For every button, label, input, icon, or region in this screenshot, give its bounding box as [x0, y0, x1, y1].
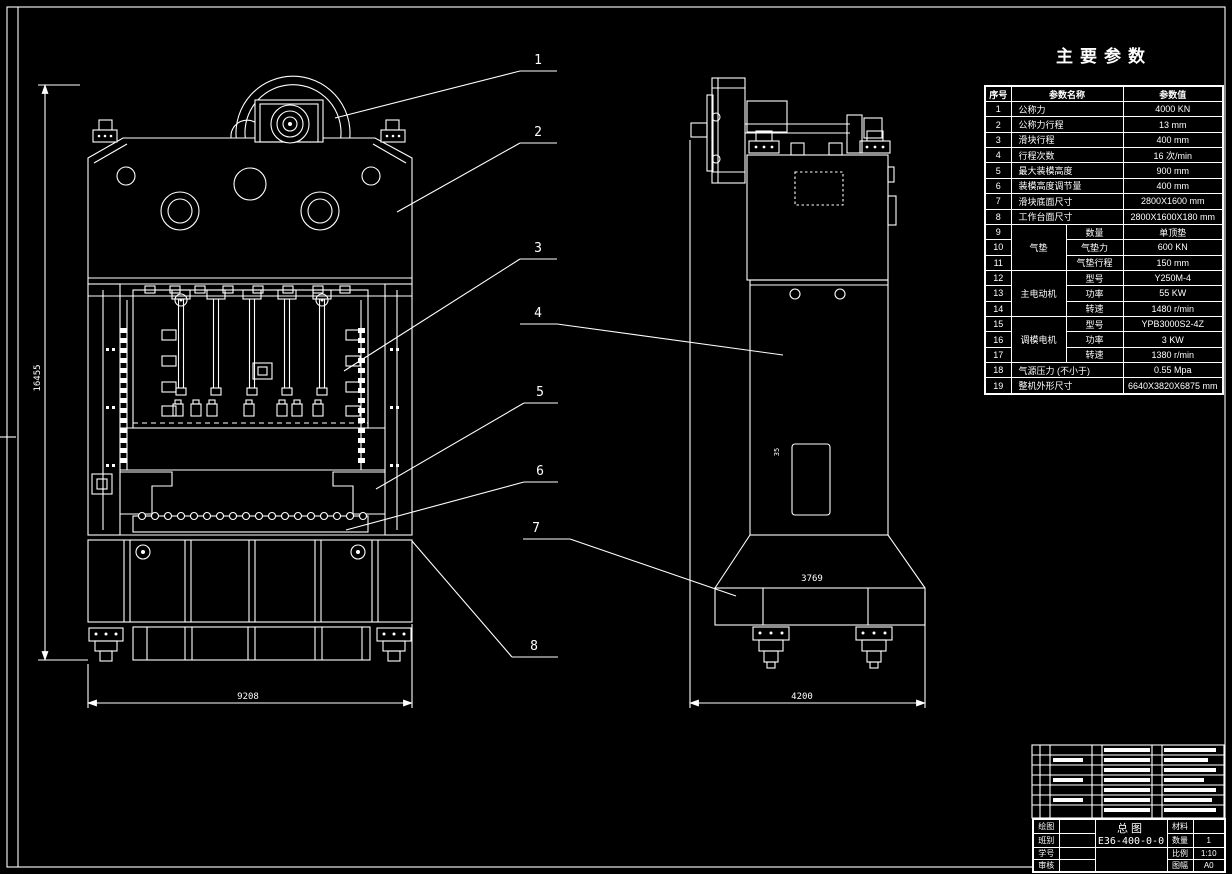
tb-label: 材料 — [1167, 819, 1193, 834]
drawing-name: 总图 — [1097, 820, 1166, 836]
dim-front-width: 9208 — [237, 692, 259, 702]
col-name: 参数名称 — [1011, 86, 1123, 102]
tb-label: 审核 — [1033, 860, 1059, 873]
front-view — [88, 76, 412, 661]
callout-label-8: 8 — [530, 639, 538, 654]
param-row: 15调模电机型号YPB3000S2-4Z — [985, 317, 1223, 332]
callouts: 1 2 3 4 5 6 7 8 — [335, 53, 783, 657]
drawing-number: E36-400-0-0 — [1097, 836, 1166, 847]
param-row: 12主电动机型号Y250M-4 — [985, 270, 1223, 285]
group-air-cushion: 气垫 — [1011, 224, 1066, 270]
side-anchor-feet — [753, 627, 892, 668]
dim-side-width: 4200 — [791, 692, 813, 702]
tb-label: 学号 — [1033, 848, 1059, 860]
param-row: 9气垫数量单顶垫 — [985, 224, 1223, 239]
callout-label-5: 5 — [536, 385, 544, 400]
bed-ribs — [124, 540, 378, 622]
wall-ledges — [162, 330, 360, 416]
callout-label-7: 7 — [532, 521, 540, 536]
cushion-feet — [173, 400, 323, 416]
param-row: 5最大装模高度900 mm — [985, 163, 1223, 178]
revision-grid — [1032, 745, 1224, 818]
param-row: 3滑块行程400 mm — [985, 132, 1223, 147]
front-anchor-feet — [89, 628, 411, 661]
group-main-motor: 主电动机 — [1011, 270, 1066, 316]
guide-teeth — [120, 328, 365, 463]
tb-label: 绘图 — [1033, 819, 1059, 834]
param-row: 4行程次数16 次/min — [985, 148, 1223, 163]
dim-side-flange: 3769 — [801, 574, 823, 584]
tb-label: 班别 — [1033, 834, 1059, 848]
params-table: 序号 参数名称 参数值 1公称力4000 KN 2公称力行程13 mm 3滑块行… — [984, 85, 1224, 395]
dim-side-note: 35 — [773, 448, 781, 456]
leg-ribs — [147, 627, 362, 660]
params-table-title: 主要参数 — [984, 42, 1224, 67]
param-row: 7滑块底面尺寸2800X1600 mm — [985, 194, 1223, 209]
param-row: 8工作台面尺寸2800X1600X180 mm — [985, 209, 1223, 224]
dim-front-height: 16455 — [33, 364, 43, 391]
group-adjust-motor: 调模电机 — [1011, 317, 1066, 363]
callout-label-2: 2 — [534, 125, 542, 140]
cad-drawing-page: { "params_table": { "title": "主要参数", "co… — [0, 0, 1232, 874]
param-row: 2公称力行程13 mm — [985, 117, 1223, 132]
params-header-row: 序号 参数名称 参数值 — [985, 86, 1223, 102]
param-row: 1公称力4000 KN — [985, 102, 1223, 117]
col-no: 序号 — [985, 86, 1011, 102]
tb-label: 图幅 — [1167, 860, 1193, 873]
param-row: 6装模高度调节量400 mm — [985, 178, 1223, 193]
tb-drawing-cell: 总图 E36-400-0-0 — [1095, 819, 1167, 848]
callout-label-4: 4 — [534, 306, 542, 321]
pulley-guard — [255, 100, 323, 143]
col-value: 参数值 — [1123, 86, 1223, 102]
tb-label: 数量 — [1167, 834, 1193, 848]
deck-bolts — [749, 131, 890, 155]
param-row: 18气源压力 (不小于)0.55 Mpa — [985, 363, 1223, 378]
callout-label-6: 6 — [536, 464, 544, 479]
param-row: 19整机外形尺寸6640X3820X6875 mm — [985, 378, 1223, 394]
tb-label: 比例 — [1167, 848, 1193, 860]
callout-label-1: 1 — [534, 53, 542, 68]
title-block: 绘图 总图 E36-400-0-0 材料 班别 数量 1 学号 比例 1:10 … — [1032, 818, 1226, 873]
slide-rods — [172, 290, 331, 395]
callout-label-3: 3 — [534, 241, 542, 256]
